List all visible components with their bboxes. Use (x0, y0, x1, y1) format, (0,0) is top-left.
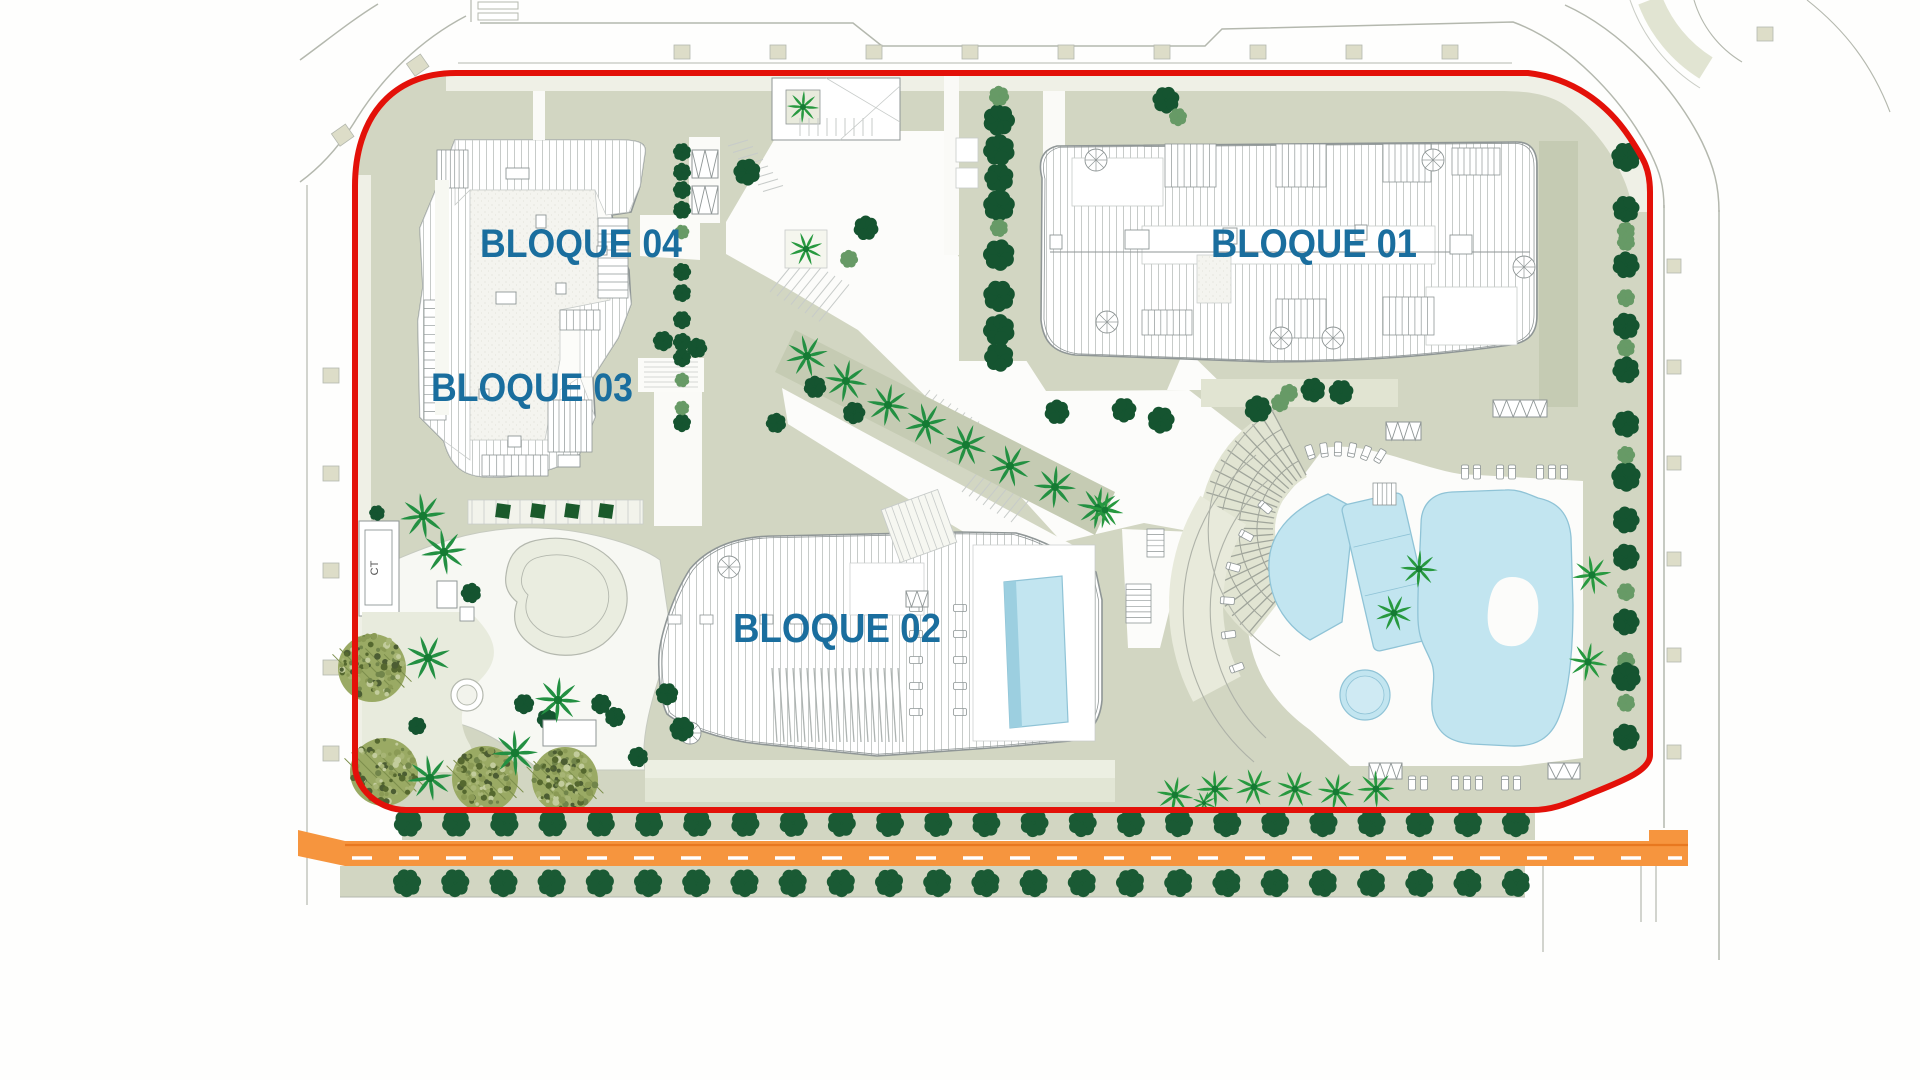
svg-text:BLOQUE 03: BLOQUE 03 (431, 366, 633, 410)
svg-text:BLOQUE 02: BLOQUE 02 (733, 605, 941, 651)
svg-text:BLOQUE 04: BLOQUE 04 (480, 222, 683, 266)
svg-text:BLOQUE 01: BLOQUE 01 (1211, 222, 1417, 266)
svg-text:CT: CT (369, 560, 381, 575)
